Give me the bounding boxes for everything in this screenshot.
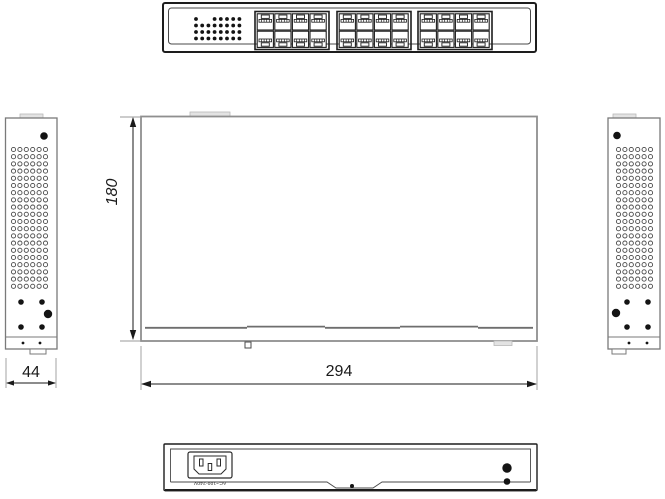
rj45-port xyxy=(275,31,291,47)
mounting-hole xyxy=(18,324,24,330)
mounting-hole xyxy=(39,299,45,305)
screw-hole xyxy=(44,310,52,318)
mounting-hole xyxy=(624,324,630,330)
bottom-edge-tab xyxy=(494,341,512,346)
led-indicator-dot xyxy=(225,17,229,21)
pin-hole xyxy=(39,342,42,345)
pin-hole xyxy=(628,342,631,345)
side-view-right xyxy=(606,112,664,362)
mounting-hole xyxy=(18,299,24,305)
rj45-port-group xyxy=(418,12,492,50)
led-indicator-dot xyxy=(219,30,223,34)
led-indicator-dot xyxy=(200,24,204,28)
arrow-left-icon xyxy=(6,380,14,385)
led-indicator-dot xyxy=(207,37,211,41)
led-indicator-dot xyxy=(231,24,235,28)
led-indicator-dot xyxy=(231,30,235,34)
front-view xyxy=(162,2,538,56)
led-indicator-dot xyxy=(219,17,223,21)
led-indicator-dot xyxy=(238,37,242,41)
rj45-port xyxy=(310,31,326,47)
led-indicator-dot xyxy=(213,17,217,21)
arrow-right-icon xyxy=(527,381,537,387)
rj45-port xyxy=(455,14,471,30)
rj45-port xyxy=(257,14,273,30)
mounting-hole xyxy=(39,324,45,330)
mounting-hole xyxy=(645,324,651,330)
top-view-outline xyxy=(141,117,537,342)
rj45-port xyxy=(292,14,308,30)
front-port-groups xyxy=(255,12,492,50)
dimension-depth: 180 xyxy=(104,117,141,341)
dimension-side-width: 44 xyxy=(0,356,64,392)
arrow-down-icon xyxy=(130,330,136,340)
led-indicator-dot xyxy=(213,37,217,41)
rj45-port xyxy=(420,31,436,47)
rj45-port xyxy=(339,14,355,30)
led-indicator-dot xyxy=(219,37,223,41)
led-indicator-dot xyxy=(213,24,217,28)
led-indicator-dot xyxy=(207,24,211,28)
grounding-hole xyxy=(504,478,511,485)
led-indicator-dot xyxy=(194,30,198,34)
rubber-foot xyxy=(612,349,626,354)
led-indicator-dot xyxy=(219,24,223,28)
rubber-foot xyxy=(30,349,46,354)
reset-hole xyxy=(502,463,511,472)
pin-hole xyxy=(22,342,25,345)
arrow-left-icon xyxy=(141,381,151,387)
bottom-notch xyxy=(245,342,251,348)
rj45-port xyxy=(292,31,308,47)
led-indicator-dot xyxy=(194,17,198,21)
dimension-depth-label: 180 xyxy=(104,179,121,206)
rj45-port xyxy=(374,14,390,30)
mounting-hole xyxy=(645,299,651,305)
screw-hole xyxy=(612,309,620,317)
rear-view: AC~100-240V xyxy=(163,443,538,495)
led-indicator-dot xyxy=(194,37,198,41)
rj45-port xyxy=(275,14,291,30)
led-indicator-dot xyxy=(200,30,204,34)
stand-screw-hole xyxy=(350,484,354,488)
rj45-port xyxy=(357,14,373,30)
led-indicator-dot xyxy=(238,17,242,21)
led-indicator-dot xyxy=(207,30,211,34)
top-view: 180 294 xyxy=(100,108,548,398)
power-inlet xyxy=(188,452,232,478)
rj45-port xyxy=(339,31,355,47)
rj45-port-group xyxy=(337,12,411,50)
led-indicator-dot xyxy=(200,37,204,41)
led-indicator-dot xyxy=(238,24,242,28)
led-indicator-dot xyxy=(213,30,217,34)
rj45-port xyxy=(420,14,436,30)
dimension-width: 294 xyxy=(141,346,537,390)
rj45-port xyxy=(455,31,471,47)
arrow-up-icon xyxy=(130,117,136,127)
led-indicator-dot xyxy=(231,17,235,21)
rj45-port xyxy=(473,31,489,47)
led-indicator-dot xyxy=(225,24,229,28)
screw-hole xyxy=(40,132,48,140)
pin-hole xyxy=(646,342,649,345)
led-indicator-dot xyxy=(225,30,229,34)
drawing-canvas: 180 294 xyxy=(0,0,665,499)
dimension-side-width-label: 44 xyxy=(22,364,40,381)
rj45-port xyxy=(473,14,489,30)
rj45-port xyxy=(357,31,373,47)
led-indicator-dot xyxy=(231,37,235,41)
rj45-port xyxy=(438,14,454,30)
side-view-left xyxy=(4,112,62,362)
rj45-port xyxy=(310,14,326,30)
rj45-port xyxy=(374,31,390,47)
dimension-width-label: 294 xyxy=(326,363,353,380)
rj45-port-group xyxy=(255,12,329,50)
arrow-right-icon xyxy=(48,380,56,385)
led-indicator-dot xyxy=(238,30,242,34)
rj45-port xyxy=(438,31,454,47)
rj45-port xyxy=(257,31,273,47)
led-indicator-dot xyxy=(194,24,198,28)
power-rating-label: AC~100-240V xyxy=(193,480,226,486)
mounting-hole xyxy=(624,299,630,305)
led-indicator-dot xyxy=(225,37,229,41)
screw-hole xyxy=(613,132,621,140)
rj45-port xyxy=(392,14,408,30)
rj45-port xyxy=(392,31,408,47)
